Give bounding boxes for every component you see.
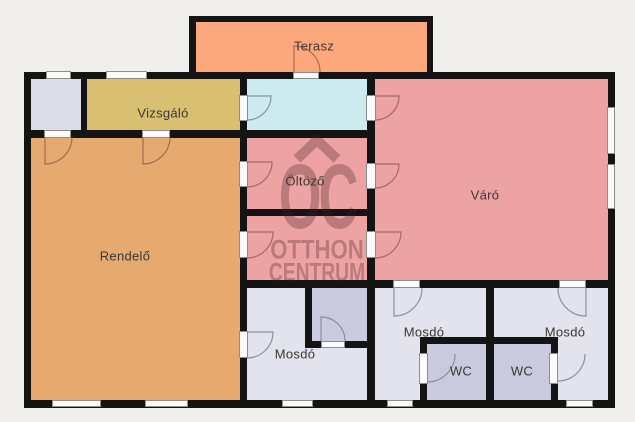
room-varo	[375, 79, 608, 280]
room-vizsgalo	[87, 79, 240, 130]
door-opening	[239, 331, 248, 358]
window-sill	[566, 400, 593, 407]
door-opening	[239, 161, 248, 187]
watermark-monogram: OC	[279, 151, 356, 243]
door-opening	[239, 231, 248, 258]
room-rendelo	[31, 138, 240, 400]
label-terasz: Terasz	[294, 39, 334, 54]
window-sill	[106, 71, 147, 79]
label-varo: Váró	[471, 188, 500, 203]
door-opening	[549, 353, 558, 384]
door-opening	[419, 353, 428, 384]
floor-plan: OC OTTHON CENTRUM Terasz Vizsgáló Rendel…	[0, 0, 635, 422]
window-sill	[46, 71, 71, 79]
door-opening	[366, 163, 376, 189]
label-rendelo: Rendelő	[100, 249, 151, 264]
window-sill	[387, 400, 413, 407]
label-mosdo-bal: Mosdó	[404, 325, 445, 340]
label-mosdo-jobb: Mosdó	[545, 325, 586, 340]
door-opening	[366, 231, 376, 258]
room-hall	[247, 79, 367, 130]
door-opening	[239, 95, 248, 121]
door-opening	[366, 95, 376, 121]
door-opening	[293, 72, 319, 79]
label-mosdo-kozep: Mosdó	[275, 347, 316, 362]
door-opening	[44, 130, 71, 138]
window-sill	[52, 400, 101, 407]
room-entry	[31, 79, 81, 130]
room-shower-cubicle	[312, 288, 367, 341]
door-opening	[559, 280, 586, 288]
watermark-line2: CENTRUM	[269, 259, 365, 285]
label-wc-jobb: WC	[511, 364, 533, 379]
door-opening	[321, 341, 345, 348]
window-sill	[607, 107, 615, 154]
label-oltozo: Öltöző	[285, 174, 324, 189]
door-opening	[142, 130, 170, 138]
window-sill	[145, 400, 188, 407]
door-opening	[393, 280, 420, 288]
label-vizsgalo: Vizsgáló	[137, 106, 188, 121]
window-sill	[607, 164, 615, 209]
label-wc-bal: WC	[450, 364, 472, 379]
window-sill	[282, 400, 313, 407]
